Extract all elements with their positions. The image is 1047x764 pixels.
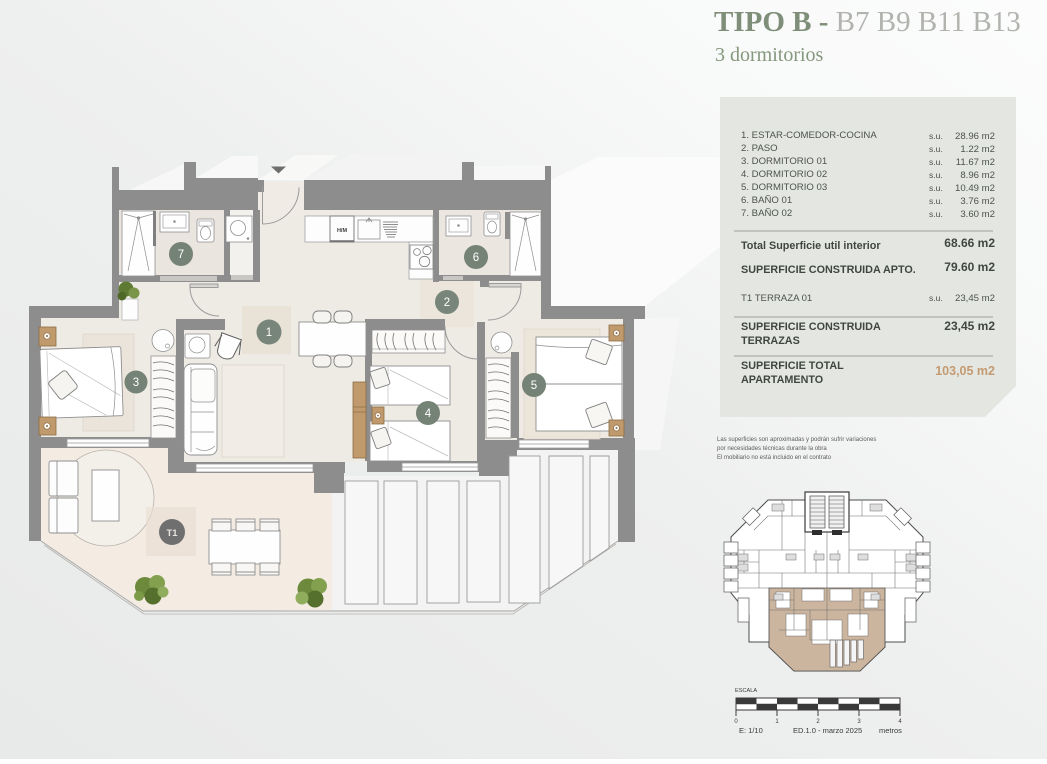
svg-text:3.60 m2: 3.60 m2 xyxy=(960,209,995,220)
svg-text:ESCALA: ESCALA xyxy=(735,688,757,694)
svg-text:2. PASO: 2. PASO xyxy=(741,143,778,154)
svg-text:E: 1/10: E: 1/10 xyxy=(739,726,763,735)
svg-text:7: 7 xyxy=(178,249,184,261)
svg-text:23,45 m2: 23,45 m2 xyxy=(944,319,995,333)
svg-text:3: 3 xyxy=(133,377,139,389)
svg-text:8.96 m2: 8.96 m2 xyxy=(960,170,995,181)
svg-text:28.96 m2: 28.96 m2 xyxy=(955,131,995,142)
svg-text:s.u.: s.u. xyxy=(929,131,943,141)
svg-text:s.u.: s.u. xyxy=(929,157,943,167)
svg-text:103,05 m2: 103,05 m2 xyxy=(935,364,995,378)
svg-text:4. DORMITORIO 02: 4. DORMITORIO 02 xyxy=(741,169,827,180)
svg-text:79.60 m2: 79.60 m2 xyxy=(944,260,995,274)
svg-text:TIPO B - B7 B9 B11 B13: TIPO B - B7 B9 B11 B13 xyxy=(714,6,1021,38)
svg-text:SUPERFICIE TOTAL: SUPERFICIE TOTAL xyxy=(741,360,844,372)
svg-text:10.49 m2: 10.49 m2 xyxy=(955,183,995,194)
svg-text:4: 4 xyxy=(425,408,432,420)
svg-text:1.22 m2: 1.22 m2 xyxy=(960,144,995,155)
svg-text:SUPERFICIE CONSTRUIDA APTO.: SUPERFICIE CONSTRUIDA APTO. xyxy=(741,264,916,276)
svg-text:3.76 m2: 3.76 m2 xyxy=(960,196,995,207)
svg-text:2: 2 xyxy=(444,297,450,309)
svg-text:s.u.: s.u. xyxy=(929,144,943,154)
svg-text:1: 1 xyxy=(266,327,272,339)
svg-text:T1 TERRAZA 01: T1 TERRAZA 01 xyxy=(741,293,812,304)
svg-text:6: 6 xyxy=(473,252,479,264)
svg-text:11.67 m2: 11.67 m2 xyxy=(956,157,995,168)
svg-text:s.u.: s.u. xyxy=(929,293,943,303)
svg-text:s.u.: s.u. xyxy=(929,196,943,206)
svg-text:SUPERFICIE CONSTRUIDA: SUPERFICIE CONSTRUIDA xyxy=(741,321,881,333)
svg-text:68.66 m2: 68.66 m2 xyxy=(944,236,995,250)
svg-text:APARTAMENTO: APARTAMENTO xyxy=(741,374,823,386)
svg-text:T1: T1 xyxy=(166,528,178,539)
svg-text:23,45 m2: 23,45 m2 xyxy=(955,293,995,304)
svg-text:ED.1.0 - marzo 2025: ED.1.0 - marzo 2025 xyxy=(793,726,862,735)
svg-text:Total Superficie util interior: Total Superficie util interior xyxy=(741,240,881,252)
svg-text:H/M: H/M xyxy=(337,228,348,234)
svg-text:Las superficies son aproximada: Las superficies son aproximadas y podrán… xyxy=(717,437,876,443)
svg-text:6. BAÑO 01: 6. BAÑO 01 xyxy=(741,195,792,206)
svg-text:3. DORMITORIO 01: 3. DORMITORIO 01 xyxy=(741,156,827,167)
svg-text:por necesidades técnicas duran: por necesidades técnicas durante la obra xyxy=(717,446,827,452)
svg-text:5: 5 xyxy=(531,380,537,392)
svg-text:s.u.: s.u. xyxy=(929,170,943,180)
svg-text:5. DORMITORIO 03: 5. DORMITORIO 03 xyxy=(741,182,827,193)
svg-text:metros: metros xyxy=(879,726,902,735)
svg-text:El mobiliario no está incluido: El mobiliario no está incluido en el con… xyxy=(717,455,832,461)
svg-text:7. BAÑO 02: 7. BAÑO 02 xyxy=(741,208,792,219)
svg-text:3 dormitorios: 3 dormitorios xyxy=(715,44,824,66)
svg-text:1. ESTAR-COMEDOR-COCINA: 1. ESTAR-COMEDOR-COCINA xyxy=(741,130,877,141)
svg-text:s.u.: s.u. xyxy=(929,209,943,219)
svg-text:TERRAZAS: TERRAZAS xyxy=(741,335,800,347)
svg-text:s.u.: s.u. xyxy=(929,183,943,193)
